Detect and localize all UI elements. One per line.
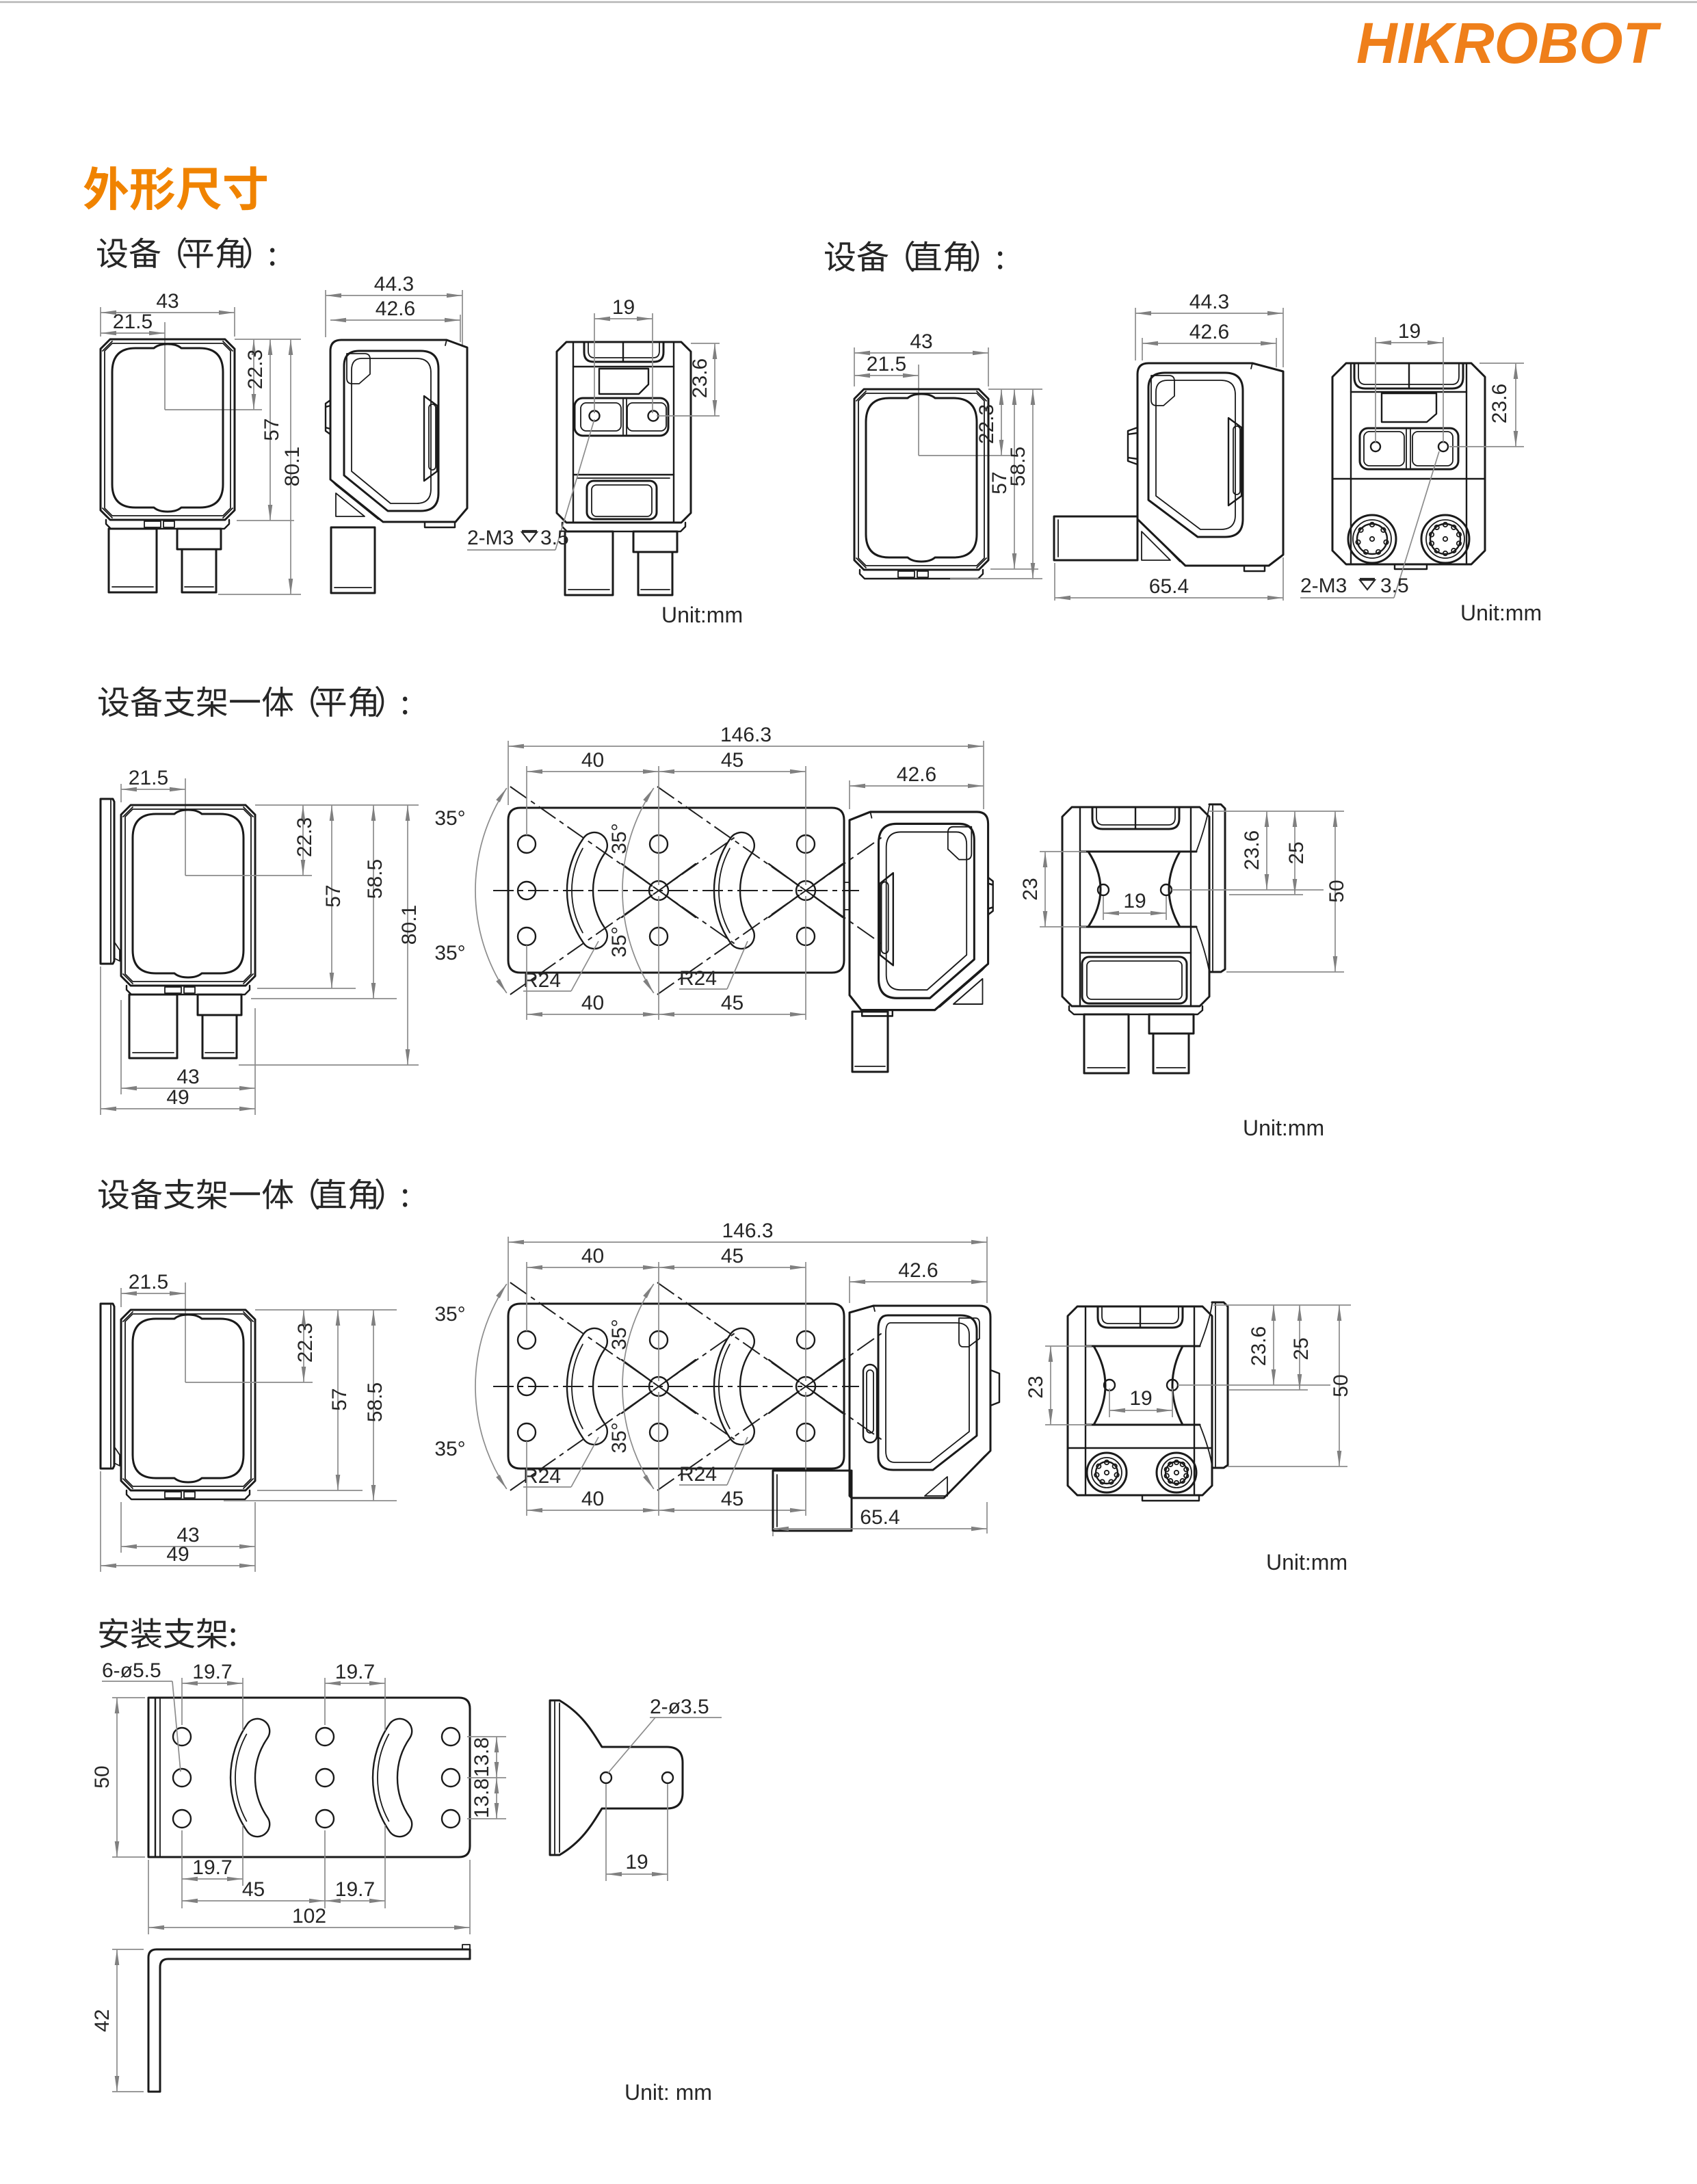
svg-text:21.5: 21.5 xyxy=(129,767,168,789)
svg-text:3.5: 3.5 xyxy=(540,527,569,549)
svg-text:42.6: 42.6 xyxy=(898,1259,938,1282)
svg-text:Unit:mm: Unit:mm xyxy=(661,603,743,627)
svg-text:25: 25 xyxy=(1290,1337,1313,1360)
svg-text:35°: 35° xyxy=(434,1438,465,1460)
svg-text:50: 50 xyxy=(1330,1374,1352,1397)
svg-text:R24: R24 xyxy=(523,1465,561,1488)
svg-text:58.5: 58.5 xyxy=(1007,447,1029,486)
svg-text:58.5: 58.5 xyxy=(364,859,386,899)
svg-text:102: 102 xyxy=(292,1905,326,1928)
svg-text:23: 23 xyxy=(1019,878,1042,900)
svg-text:35°: 35° xyxy=(608,1319,631,1350)
svg-text:HIKROBOT: HIKROBOT xyxy=(1356,11,1662,75)
svg-text:19: 19 xyxy=(625,1851,648,1873)
svg-text:35°: 35° xyxy=(608,823,631,854)
svg-text:45: 45 xyxy=(721,749,744,772)
svg-text:35°: 35° xyxy=(434,942,465,964)
svg-text:57: 57 xyxy=(261,418,283,440)
svg-text:40: 40 xyxy=(581,749,604,772)
svg-text:35°: 35° xyxy=(434,1303,465,1326)
svg-text:21.5: 21.5 xyxy=(867,353,906,376)
svg-text:21.5: 21.5 xyxy=(129,1271,168,1293)
svg-text:22.3: 22.3 xyxy=(975,404,998,444)
svg-text:45: 45 xyxy=(721,1245,744,1267)
svg-text:23.6: 23.6 xyxy=(1488,384,1511,423)
svg-text:22.3: 22.3 xyxy=(294,1323,317,1363)
svg-text:35°: 35° xyxy=(434,807,465,830)
svg-text:146.3: 146.3 xyxy=(720,724,772,746)
svg-text:65.4: 65.4 xyxy=(1149,575,1189,598)
svg-text:57: 57 xyxy=(322,884,345,907)
svg-text:57: 57 xyxy=(328,1388,351,1410)
svg-text:23.6: 23.6 xyxy=(689,358,711,398)
svg-text:19: 19 xyxy=(612,296,635,319)
svg-text:45: 45 xyxy=(721,1488,744,1510)
svg-text:49: 49 xyxy=(166,1543,189,1566)
svg-text:35°: 35° xyxy=(608,1422,631,1453)
svg-text:65.4: 65.4 xyxy=(860,1506,899,1529)
svg-text:43: 43 xyxy=(156,290,179,313)
svg-text:13.8: 13.8 xyxy=(471,1778,493,1818)
svg-text:44.3: 44.3 xyxy=(374,273,414,295)
svg-text:Unit:mm: Unit:mm xyxy=(1266,1550,1347,1575)
svg-text:19: 19 xyxy=(1129,1387,1152,1410)
svg-text:42.6: 42.6 xyxy=(897,763,936,786)
svg-text:Unit:mm: Unit:mm xyxy=(1243,1116,1324,1140)
svg-text:23.6: 23.6 xyxy=(1241,830,1263,870)
svg-text:19.7: 19.7 xyxy=(335,1878,375,1901)
svg-text:22.3: 22.3 xyxy=(293,817,316,857)
svg-text:45: 45 xyxy=(721,992,744,1014)
svg-text:42: 42 xyxy=(91,2009,114,2031)
svg-text:22.3: 22.3 xyxy=(244,350,267,389)
svg-text:146.3: 146.3 xyxy=(722,1220,773,1242)
svg-text:13.8: 13.8 xyxy=(471,1737,493,1777)
svg-text:25: 25 xyxy=(1285,841,1308,864)
svg-text:45: 45 xyxy=(242,1878,265,1901)
svg-text:2-ø3.5: 2-ø3.5 xyxy=(650,1696,709,1718)
svg-text:43: 43 xyxy=(910,330,932,353)
svg-text:80.1: 80.1 xyxy=(281,447,304,486)
svg-text:23: 23 xyxy=(1025,1376,1047,1398)
svg-text:35°: 35° xyxy=(608,926,631,957)
svg-text:21.5: 21.5 xyxy=(113,311,153,333)
svg-text:23.6: 23.6 xyxy=(1248,1326,1270,1366)
svg-text:40: 40 xyxy=(581,1488,604,1510)
svg-text:2-M3: 2-M3 xyxy=(467,527,514,549)
svg-text:19: 19 xyxy=(1123,890,1146,912)
svg-text:Unit: mm: Unit: mm xyxy=(624,2080,712,2105)
svg-text:50: 50 xyxy=(1326,880,1348,902)
svg-text:R24: R24 xyxy=(679,967,717,990)
svg-text:3.5: 3.5 xyxy=(1380,575,1409,597)
svg-text:42.6: 42.6 xyxy=(376,298,415,320)
svg-text:19.7: 19.7 xyxy=(335,1661,375,1683)
svg-text:42.6: 42.6 xyxy=(1189,321,1229,343)
svg-text:40: 40 xyxy=(581,1245,604,1267)
svg-text:19.7: 19.7 xyxy=(192,1661,232,1683)
svg-text:50: 50 xyxy=(91,1765,114,1788)
svg-text:Unit:mm: Unit:mm xyxy=(1460,601,1542,625)
svg-text:19.7: 19.7 xyxy=(192,1856,232,1879)
svg-text:2-M3: 2-M3 xyxy=(1300,575,1347,597)
svg-text:R24: R24 xyxy=(679,1463,717,1486)
svg-text:49: 49 xyxy=(166,1086,189,1109)
svg-text:44.3: 44.3 xyxy=(1189,291,1229,313)
svg-text:43: 43 xyxy=(176,1066,199,1088)
svg-text:40: 40 xyxy=(581,992,604,1014)
svg-text:R24: R24 xyxy=(523,969,561,992)
svg-text:80.1: 80.1 xyxy=(398,905,421,945)
svg-text:58.5: 58.5 xyxy=(364,1382,386,1422)
svg-text:6-ø5.5: 6-ø5.5 xyxy=(102,1659,161,1682)
svg-text:19: 19 xyxy=(1398,320,1421,343)
